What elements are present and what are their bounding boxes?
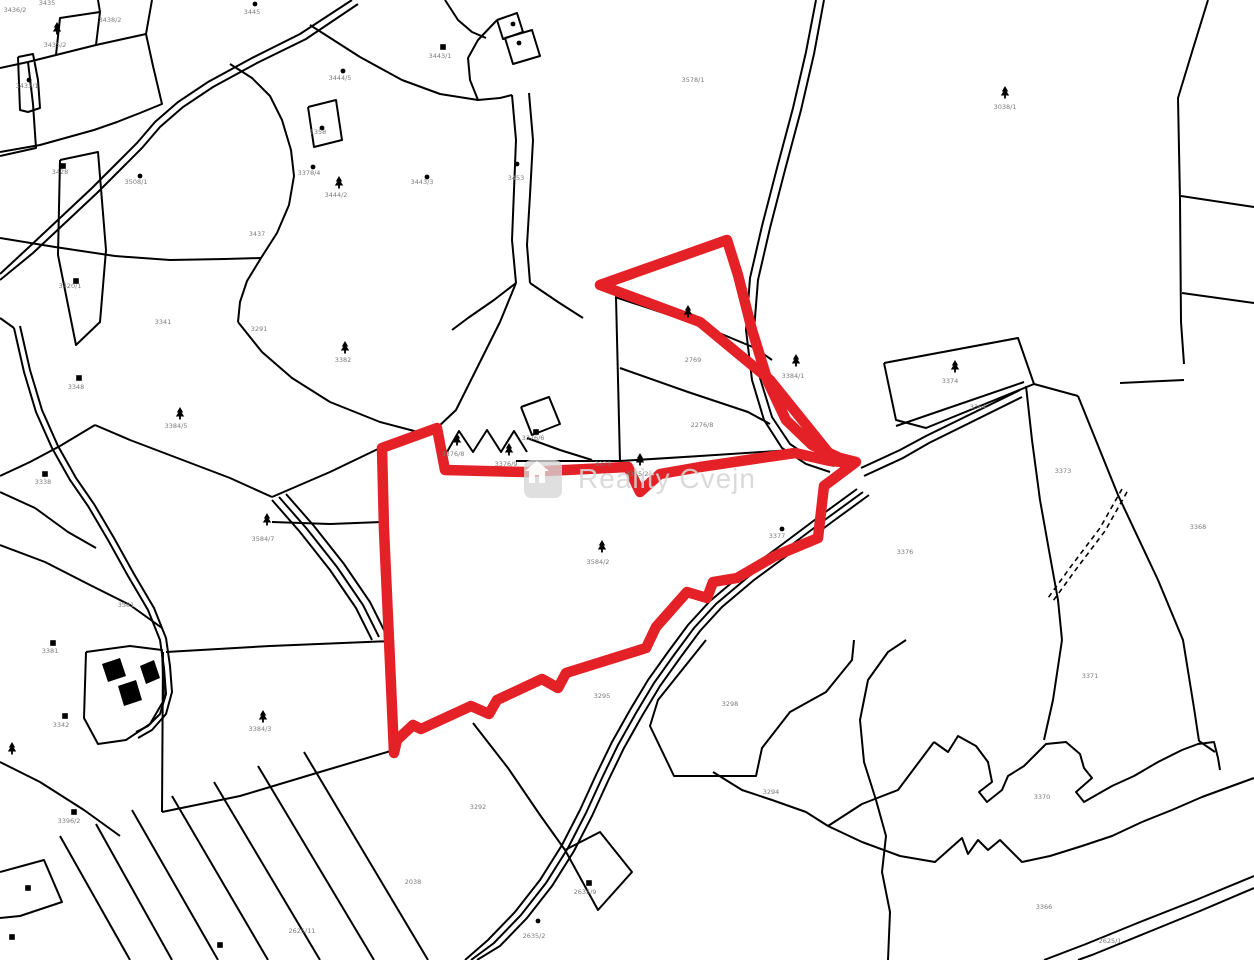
parcel-boundary-line [1120,380,1184,383]
tree-icon [335,176,343,189]
point-marker-icon [511,22,516,27]
parcel-number-label: 3291 [251,325,268,333]
parcel-number-label: 3420/1 [59,282,82,290]
parcel-boundary-line [1078,396,1199,741]
parcel-boundary-line [527,93,533,283]
parcel-number-label: 3298 [722,700,739,708]
tree-icon [1001,86,1009,99]
parcel-number-label: 3433/1 [16,82,39,90]
parcel-number-label: 3435/2 [44,41,67,49]
parcel-number-label: 3370 [1034,793,1051,801]
building-marker-icon [50,640,56,646]
track-dashed-line [1048,489,1122,598]
tree-icon [341,341,349,354]
tree-icon [8,742,16,755]
road-edge-line [272,500,372,640]
parcel-number-label: 1358 [310,128,327,136]
building-marker-icon [62,713,68,719]
parcel-number-label: 2769 [685,356,702,364]
parcel-boundary-line [1181,196,1254,207]
parcel-number-label: 3438/2 [99,16,122,24]
parcel-number-label: 3371 [1082,672,1099,680]
parcel-number-label: 3375/2 [626,470,649,478]
parcel-number-label: 3443/3 [411,178,434,186]
tree-icon [263,513,271,526]
parcel-boundary-line [0,0,162,152]
parcel-boundary-line [162,750,394,812]
parcel-boundary-line [512,95,516,283]
parcel-number-label: 3376 [897,548,914,556]
road-edge-line [1078,888,1254,960]
parcel-boundary-line [0,318,14,328]
parcel-boundary-line [437,283,516,428]
parcel-boundary-line [258,766,374,960]
tree-icon [259,710,267,723]
parcel-number-label: 3584/2 [587,558,610,566]
point-marker-icon [536,919,541,924]
building-marker-icon [217,942,223,948]
map-canvas[interactable]: 3436/234353438/234453435/23433/134281358… [0,0,1254,960]
parcel-number-label: 3437 [249,230,266,238]
cadastral-map[interactable]: 3436/234353438/234453435/23433/134281358… [0,0,1254,960]
parcel-number-label: 3368 [1190,523,1207,531]
parcel-number-label: 3382 [335,356,352,364]
parcel-boundary-line [1034,384,1078,396]
building-marker-icon [25,885,31,891]
parcel-boundary-line [304,752,428,960]
parcel-number-label: 3384/1 [782,372,805,380]
parcel-boundary-line [445,0,486,38]
parcel-boundary-line [0,860,62,918]
parcel-number-label: 3453 [508,174,525,182]
parcel-boundary-line [616,297,620,462]
track-dashed-line [1053,492,1127,601]
building-marker-icon [42,471,48,477]
road-lines [0,0,1254,960]
building-marker-icon [76,375,82,381]
parcel-number-label: 2276/8 [691,421,714,429]
parcel-boundary-line [473,723,565,850]
parcel-boundary-line [308,100,342,147]
parcel-number-label: 2635/9 [574,888,597,896]
parcel-boundary-line [620,368,770,424]
tree-icon [792,354,800,367]
parcel-number-label: 3581 [118,601,135,609]
track-dashed-lines [1048,489,1127,601]
road-edge-line [1044,876,1254,960]
parcel-boundary-line [132,810,218,960]
parcel-number-label: 3508/1 [125,178,148,186]
parcel-boundary-line [713,772,828,826]
parcel-boundary-line [60,836,130,960]
parcel-number-label: 3381 [42,647,59,655]
point-marker-icon [253,2,258,7]
point-marker-icon [341,69,346,74]
parcel-number-label: 3445 [244,8,261,16]
parcel-number-label: 3378/4 [298,169,321,177]
point-marker-icon [780,527,785,532]
parcel-boundary-line [172,796,268,960]
parcel-boundary-line [166,641,392,652]
building-marker-icon [440,44,446,50]
parcel-number-label: 3294 [763,788,780,796]
parcel-boundary-line [230,64,294,322]
road-edge-line [286,494,386,634]
parcel-boundary-line [1026,386,1062,640]
tree-icon [176,407,184,420]
parcel-number-label: 3366 [1036,903,1053,911]
parcel-number-label: 3443/1 [429,52,452,60]
parcel-number-label: 2635/2 [523,932,546,940]
parcel-boundary-line [96,824,172,960]
parcel-boundary-line [530,283,583,318]
parcel-boundary-line [505,30,540,64]
road-edge-line [754,0,834,466]
parcel-number-label: 3338 [35,478,52,486]
tree-icon [598,540,606,553]
parcel-number-label: 3342 [53,721,70,729]
point-marker-icon [515,162,520,167]
parcel-number-label: 3376/8 [442,450,465,458]
parcel-boundary-line [1182,293,1254,303]
parcel-number-label: 3377 [769,532,786,540]
parcel-number-label: 2038 [405,878,422,886]
parcel-boundary-line [0,238,261,260]
parcel-boundary-line [0,34,146,68]
parcel-number-label: 3376/9 [495,460,518,468]
building-marker-icon [71,809,77,815]
parcel-number-label: 3364 [970,403,987,411]
road-edge-line [279,497,379,637]
parcel-number-label: 3578/1 [682,76,705,84]
parcel-number-label: 3348 [68,383,85,391]
parcel-number-label: 3295 [594,692,611,700]
parcel-boundary-line [828,778,1254,862]
parcel-number-label: 3038/1 [994,103,1017,111]
parcel-boundaries [0,0,1254,960]
parcel-boundary-line [0,492,96,548]
parcel-number-label: 3436/2 [4,6,27,14]
parcel-boundary-line [860,640,906,960]
parcel-number-label: 2625/11 [288,927,315,935]
parcel-boundary-line [497,13,523,39]
parcel-boundary-line [934,736,1220,802]
highlighted-parcel-outline [382,240,856,753]
parcel-number-label: 3444/2 [325,191,348,199]
parcel-boundary-line [828,742,934,826]
parcel-boundary-line [238,322,437,432]
parcel-boundary-line [0,545,162,628]
road-edge-line [477,495,869,960]
parcel-boundary-line [272,522,382,524]
road-edge-line [465,489,857,960]
building-footprints [102,658,160,706]
building-marker-icon [586,880,592,886]
parcel-number-label: 2625/1 [1099,937,1122,945]
parcel-number-label: 3341 [155,318,172,326]
parcel-number-label: 3384/3 [249,725,272,733]
parcel-number-label: 3376/6 [522,434,545,442]
parcel-boundary-line [565,832,632,910]
parcel-number-label: 3435 [39,0,56,7]
parcel-boundary-line [95,425,272,497]
parcel-number-label: 3375 [595,460,612,468]
parcel-number-label: 3444/5 [329,74,352,82]
parcel-boundary-line [884,338,1034,428]
building-footprint [118,680,142,706]
parcel-number-label: 3428 [52,168,69,176]
parcel-number-label: 3396/2 [58,817,81,825]
tree-icon [951,360,959,373]
road-edge-line [471,492,863,960]
building-footprint [140,660,160,684]
parcel-number-label: 3292 [470,803,487,811]
parcel-boundary-line [650,640,854,776]
parcel-boundary-line [0,425,95,476]
building-marker-icon [9,934,15,940]
parcel-number-label: 3373 [1055,467,1072,475]
road-edge-line [861,390,1020,468]
parcel-boundary-line [98,0,100,12]
parcel-boundary-line [1044,640,1062,740]
parcel-boundary-line [521,397,560,435]
parcel-number-label: 3374 [942,377,959,385]
building-footprint [102,658,126,682]
point-marker-icon [517,41,522,46]
parcel-boundary-line [1178,0,1208,364]
highlighted-parcel-path [382,240,856,753]
parcel-number-label: 3384/5 [165,422,188,430]
parcel-number-label: 3584/7 [252,535,275,543]
